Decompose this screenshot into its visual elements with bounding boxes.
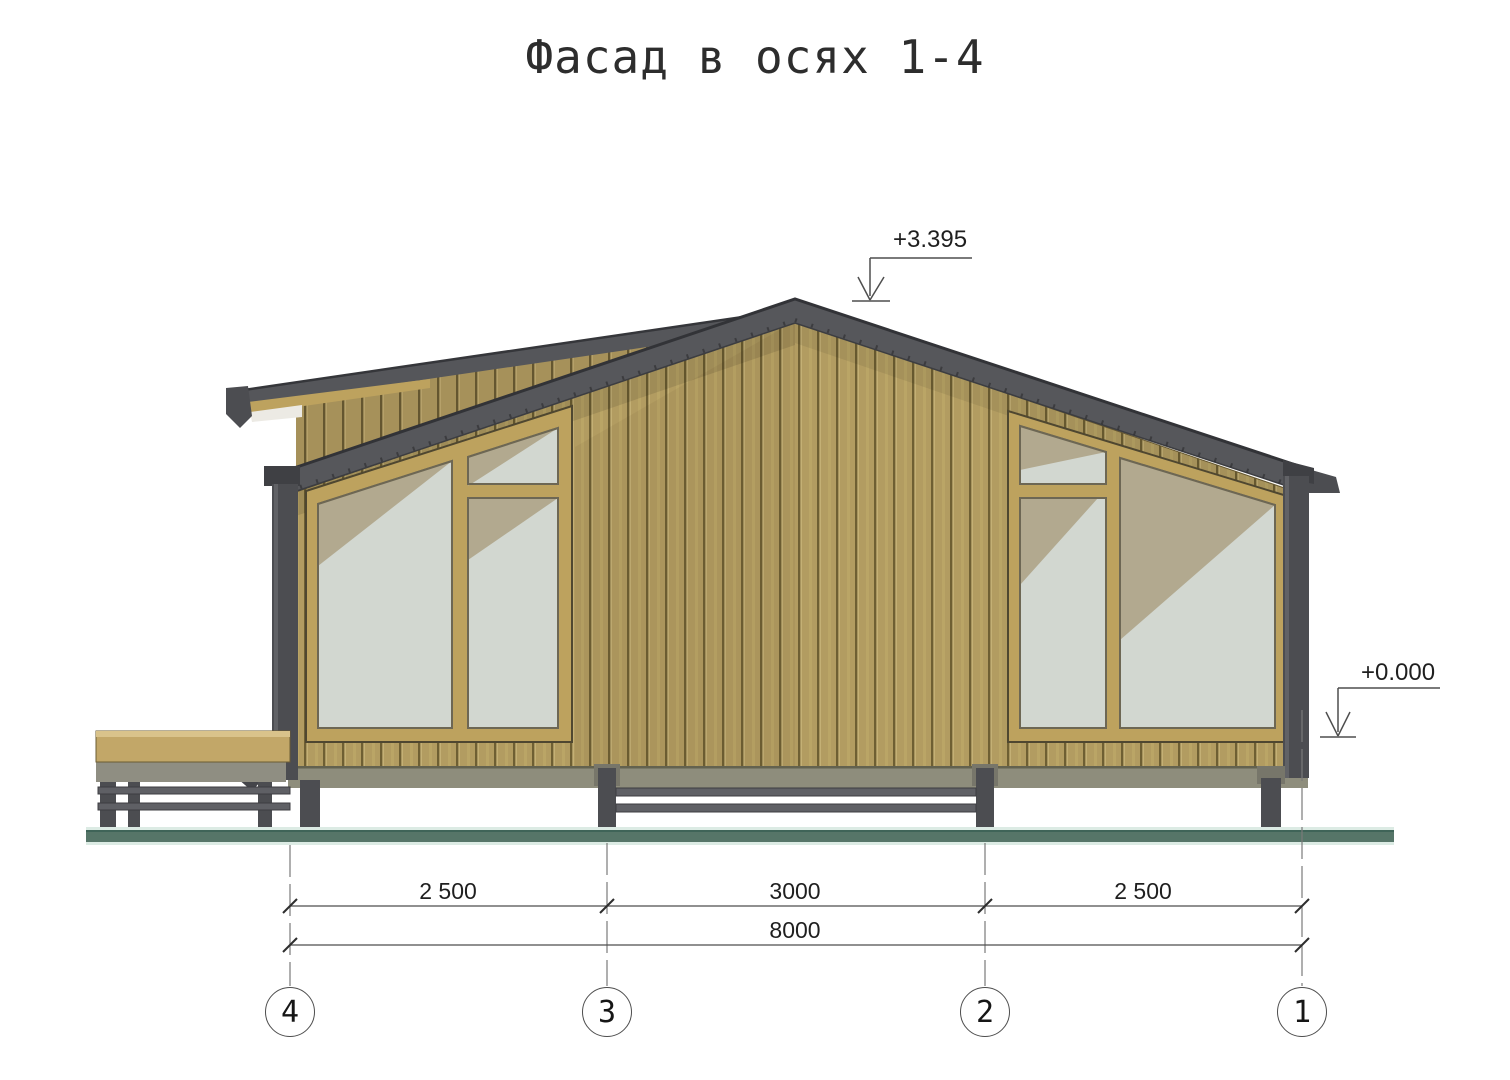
right-corner-column bbox=[1283, 460, 1314, 778]
dimension-segment-3: 2 500 bbox=[1114, 880, 1172, 903]
ground-line bbox=[86, 827, 1394, 845]
floor-rim bbox=[288, 766, 1308, 788]
dimension-total: 8000 bbox=[769, 919, 820, 942]
axis-bubble-1: 1 bbox=[1277, 987, 1327, 1037]
level-marker-ridge bbox=[852, 258, 972, 301]
deck bbox=[96, 731, 290, 834]
dimension-segment-2: 3000 bbox=[769, 880, 820, 903]
elevation-drawing bbox=[0, 0, 1510, 1080]
rear-roof-fascia-end bbox=[226, 386, 252, 428]
axis-bubble-4: 4 bbox=[265, 987, 315, 1037]
deck-rail bbox=[98, 787, 290, 794]
dimension-segment-1: 2 500 bbox=[419, 880, 477, 903]
axis-bubble-2: 2 bbox=[960, 987, 1010, 1037]
level-marker-floor bbox=[1320, 688, 1440, 737]
page-title: Фасад в осях 1-4 bbox=[525, 30, 984, 84]
floor-level-label: +0.000 bbox=[1361, 661, 1435, 685]
ridge-level-label: +3.395 bbox=[893, 228, 967, 252]
cross-rail bbox=[616, 804, 976, 812]
cross-rail bbox=[616, 788, 976, 796]
axis-bubble-3: 3 bbox=[582, 987, 632, 1037]
deck-rail bbox=[98, 803, 290, 810]
facade-drawing-page: Фасад в осях 1-4 +3.395 +0.000 2 500 300… bbox=[0, 0, 1510, 1080]
